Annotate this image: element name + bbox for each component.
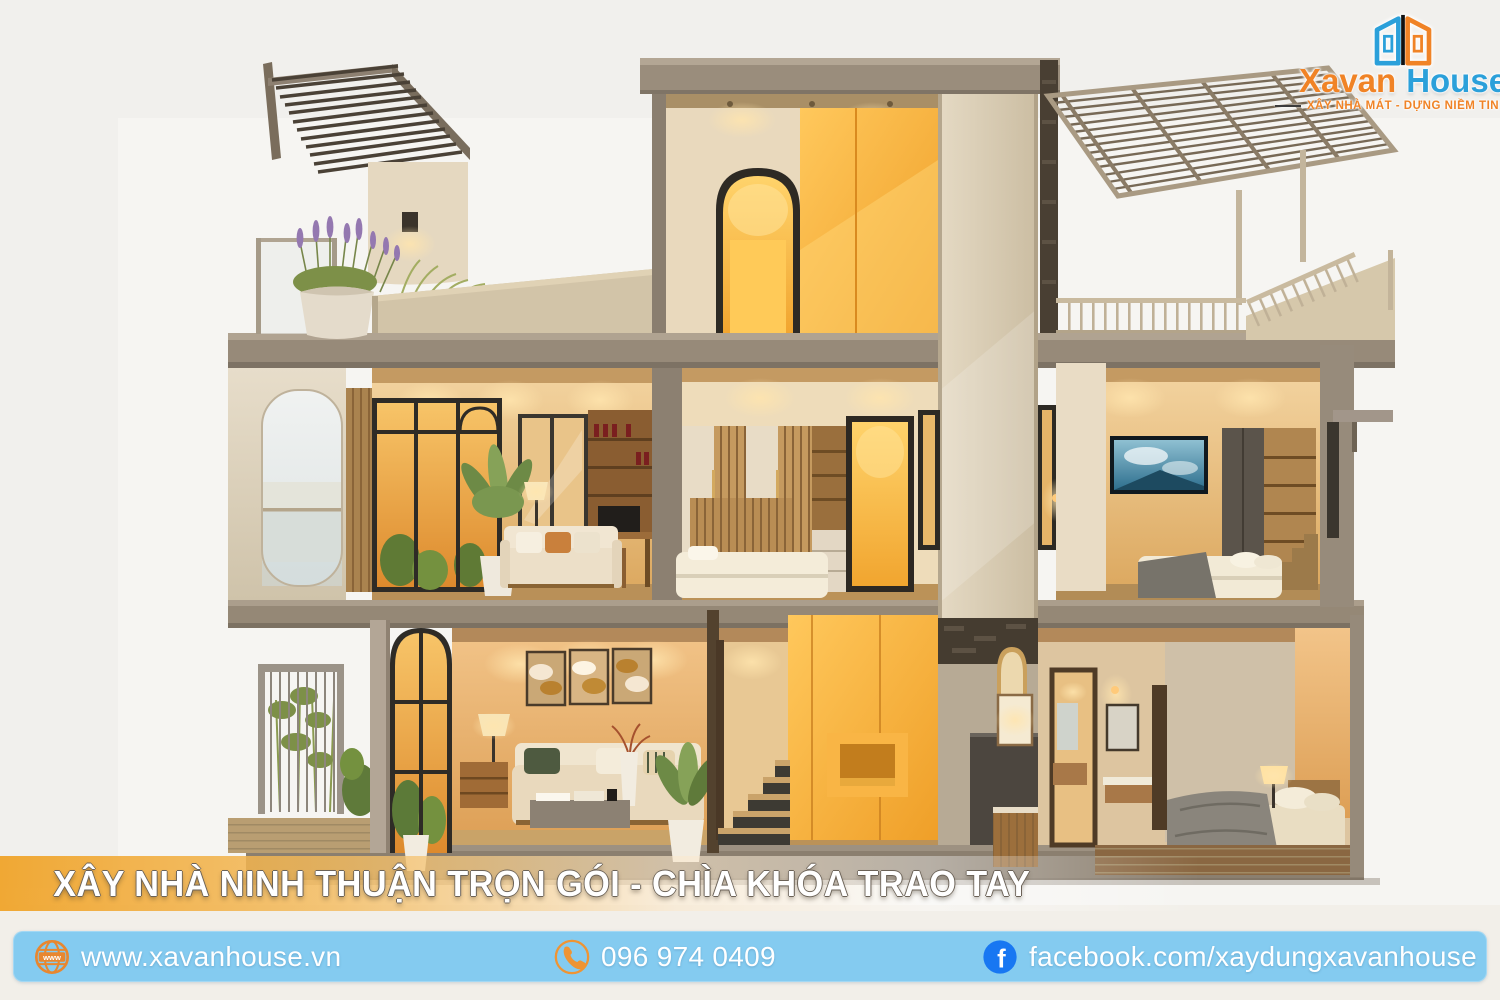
bedroom-right-mid — [1038, 345, 1393, 607]
brand-tagline: XÂY NHÀ MÁT - DỰNG NIỀM TIN — [1275, 100, 1500, 112]
facebook-icon: f — [981, 938, 1019, 976]
brand-name: XavanHouse — [1299, 64, 1500, 97]
coffee-table — [530, 789, 630, 828]
yellow-feature-wall — [788, 615, 938, 840]
tagline-dash-left — [1275, 105, 1301, 107]
vanity-zone — [938, 618, 1040, 867]
stair-hall — [716, 615, 938, 845]
svg-text:www: www — [42, 953, 61, 962]
tagline-text: XÂY NHÀ MÁT - DỰNG NIỀM TIN — [1307, 100, 1499, 112]
banner-title: XÂY NHÀ NINH THUẬN TRỌN GÓI - CHÌA KHÓA … — [0, 863, 1030, 905]
bathroom — [1052, 670, 1095, 845]
center-stairwell — [652, 94, 938, 333]
website-label: www.xavanhouse.vn — [81, 941, 341, 973]
balcony-mid-left — [228, 368, 346, 600]
advertisement-canvas: { "page": {"width": 1500, "height": 1000… — [0, 0, 1500, 1000]
brand-logo-icon — [1372, 14, 1434, 66]
bed-right-mid — [1138, 552, 1282, 598]
facebook-label: facebook.com/xaydungxavanhouse — [1029, 941, 1477, 973]
tv-artwork — [1110, 436, 1208, 494]
brand-logo: XavanHouse XÂY NHÀ MÁT - DỰNG NIỀM TIN — [1318, 14, 1488, 114]
phone-item: 096 974 0409 — [553, 931, 776, 982]
brand-name-secondary: House — [1406, 62, 1500, 99]
bedroom-center — [676, 368, 940, 600]
phone-icon — [553, 938, 591, 976]
yellow-door — [846, 416, 914, 592]
house-cutaway-illustration — [0, 0, 1500, 1000]
headline-banner: XÂY NHÀ NINH THUẬN TRỌN GÓI - CHÌA KHÓA … — [0, 856, 1500, 911]
brand-name-primary: Xavan — [1299, 62, 1396, 99]
sofa-mid-living — [500, 526, 622, 588]
ground-bedroom — [1038, 615, 1364, 877]
roof-terrace-right-railing — [1056, 250, 1395, 340]
facebook-item: f facebook.com/xaydungxavanhouse — [981, 931, 1477, 982]
svg-text:f: f — [997, 945, 1006, 973]
ground-living-room — [390, 610, 721, 871]
website-item: www www.xavanhouse.vn — [33, 931, 341, 982]
wall-art-triptych — [527, 649, 651, 705]
phone-label: 096 974 0409 — [601, 941, 776, 973]
globe-icon: www — [33, 938, 71, 976]
living-room-mid — [346, 368, 682, 600]
contact-bar: www www.xavanhouse.vn 096 974 0409 f fac… — [13, 931, 1487, 982]
